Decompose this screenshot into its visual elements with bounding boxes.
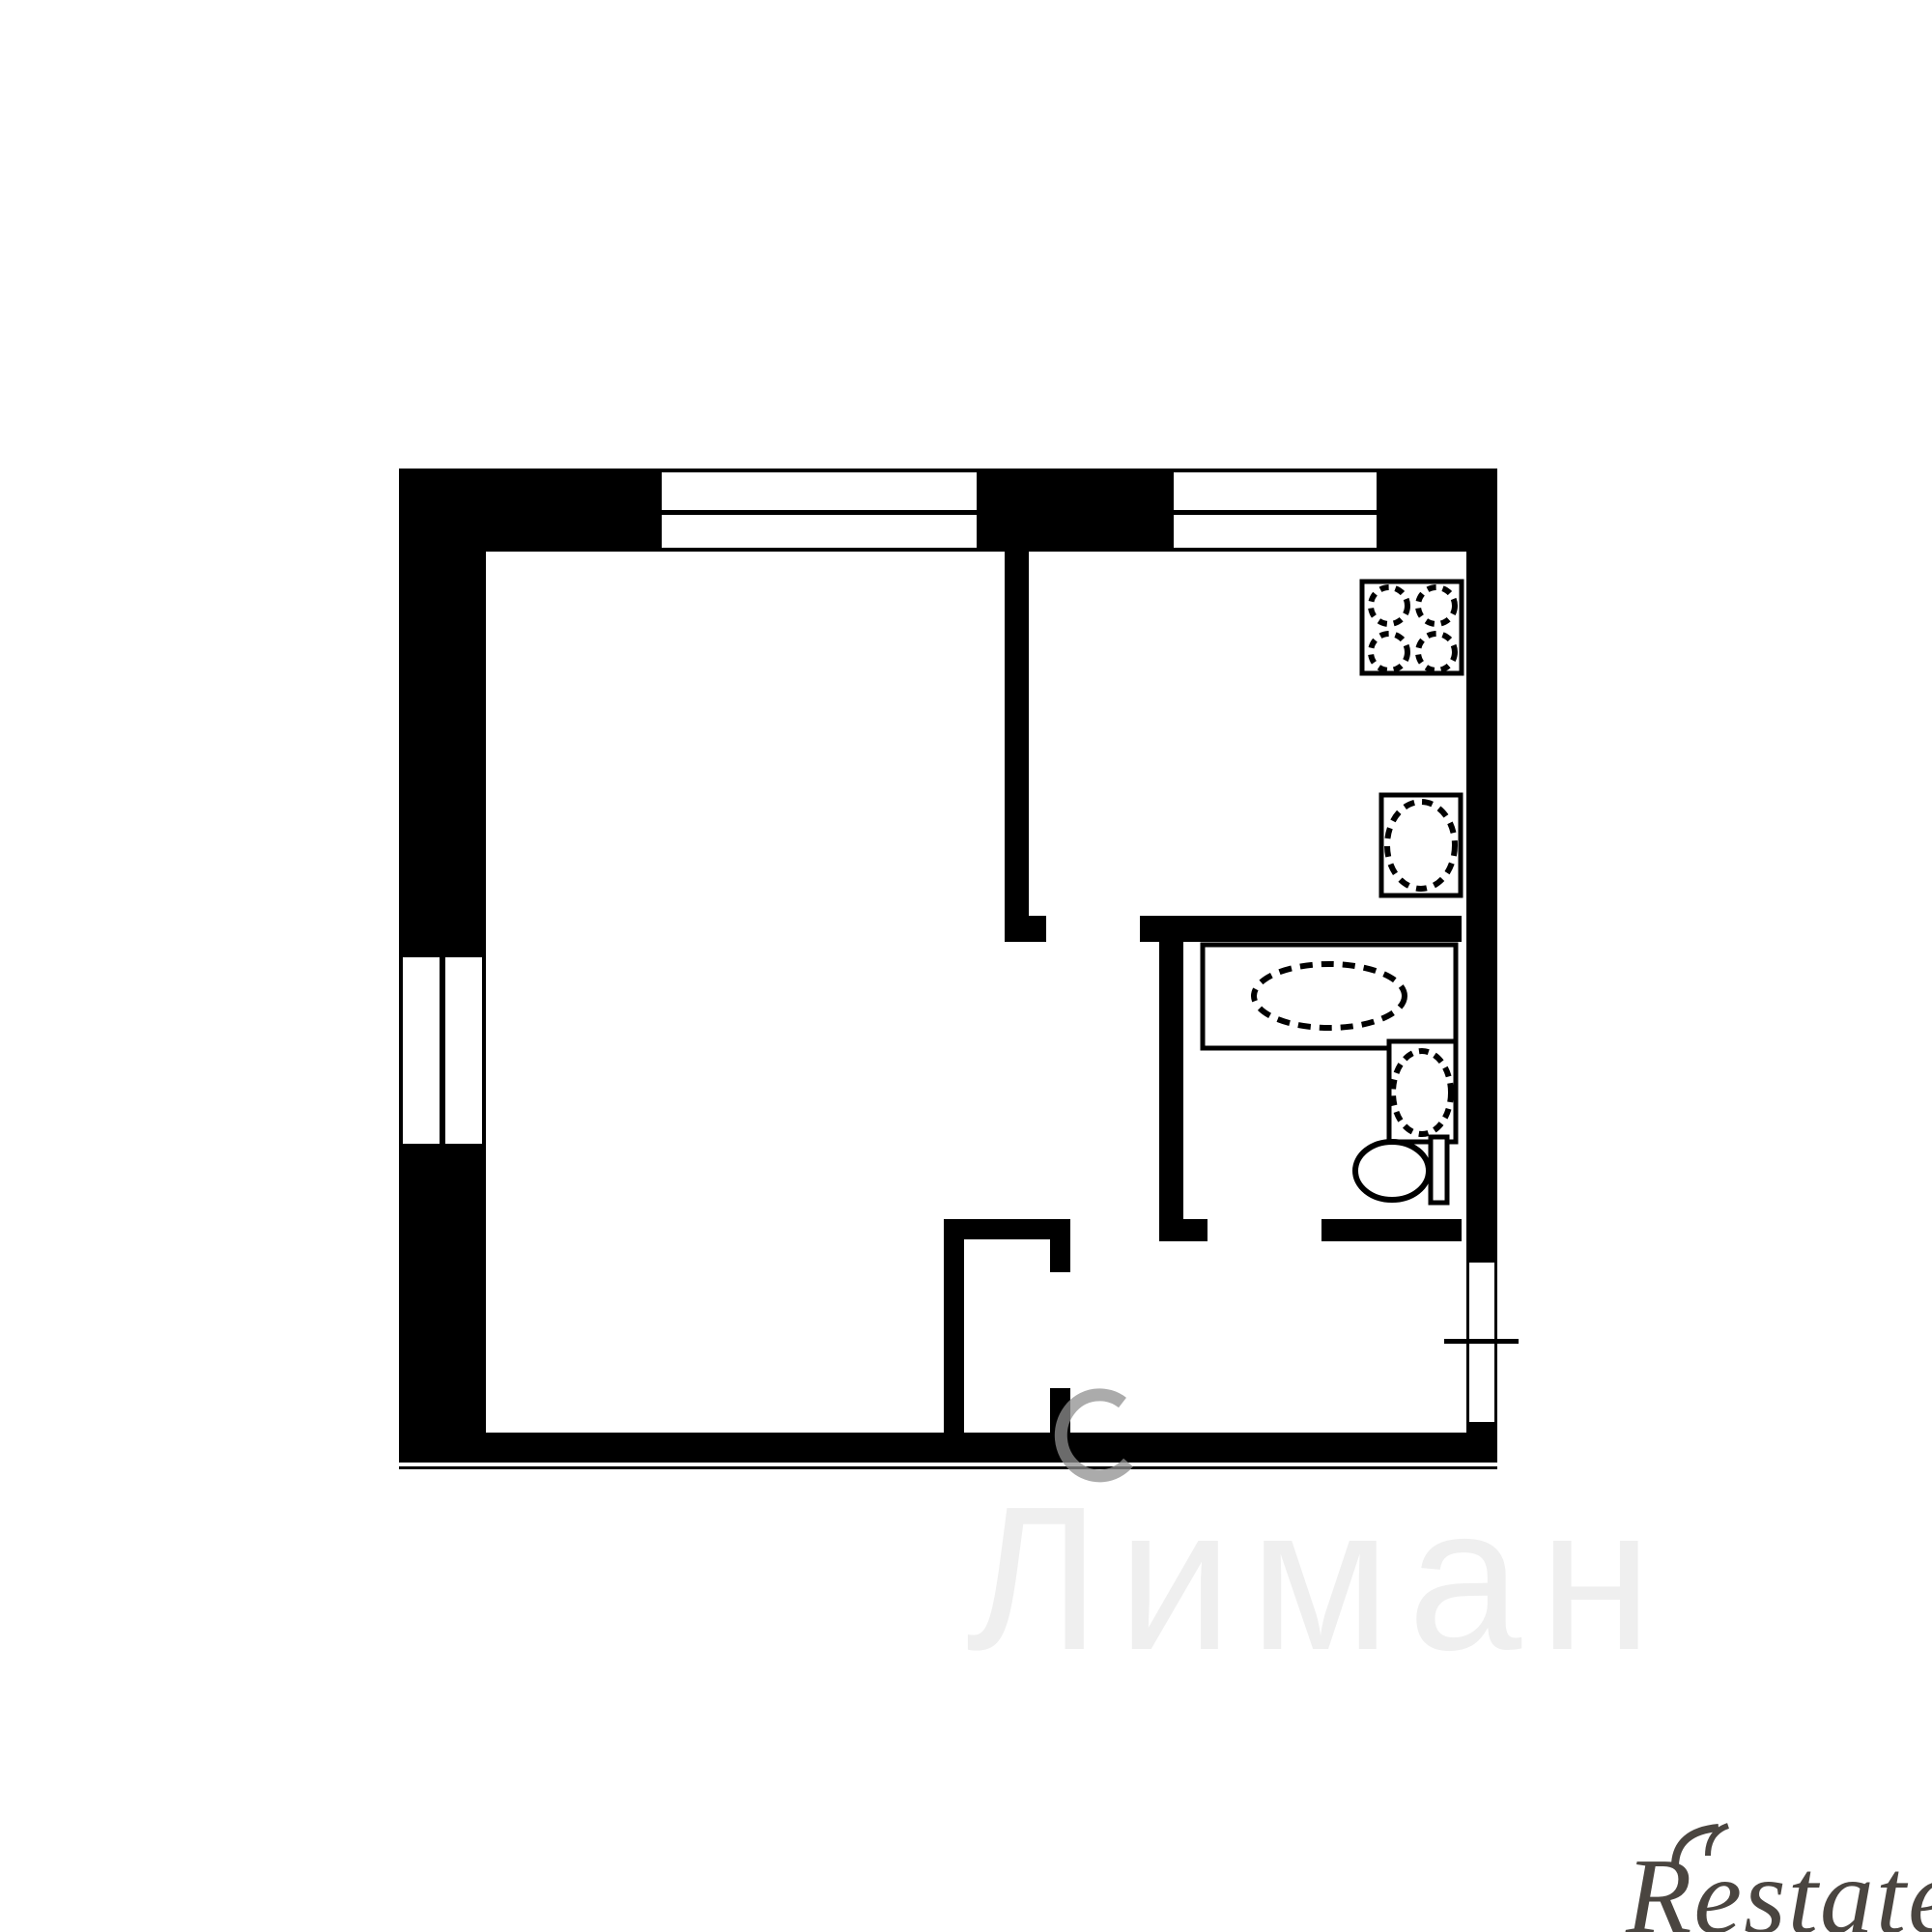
fixtures-layer bbox=[0, 0, 1932, 1932]
stove-icon bbox=[1362, 582, 1462, 673]
watermark-fragment-arc bbox=[1061, 1395, 1128, 1476]
washbasin-icon bbox=[1389, 1041, 1456, 1142]
floorplan-image: Лиман bbox=[0, 0, 1932, 1932]
bathtub-icon bbox=[1203, 945, 1456, 1048]
toilet-icon bbox=[1355, 1137, 1447, 1203]
kitchen-sink-icon bbox=[1381, 795, 1461, 895]
watermark-brand-text: Restate bbox=[1626, 1843, 1932, 1932]
